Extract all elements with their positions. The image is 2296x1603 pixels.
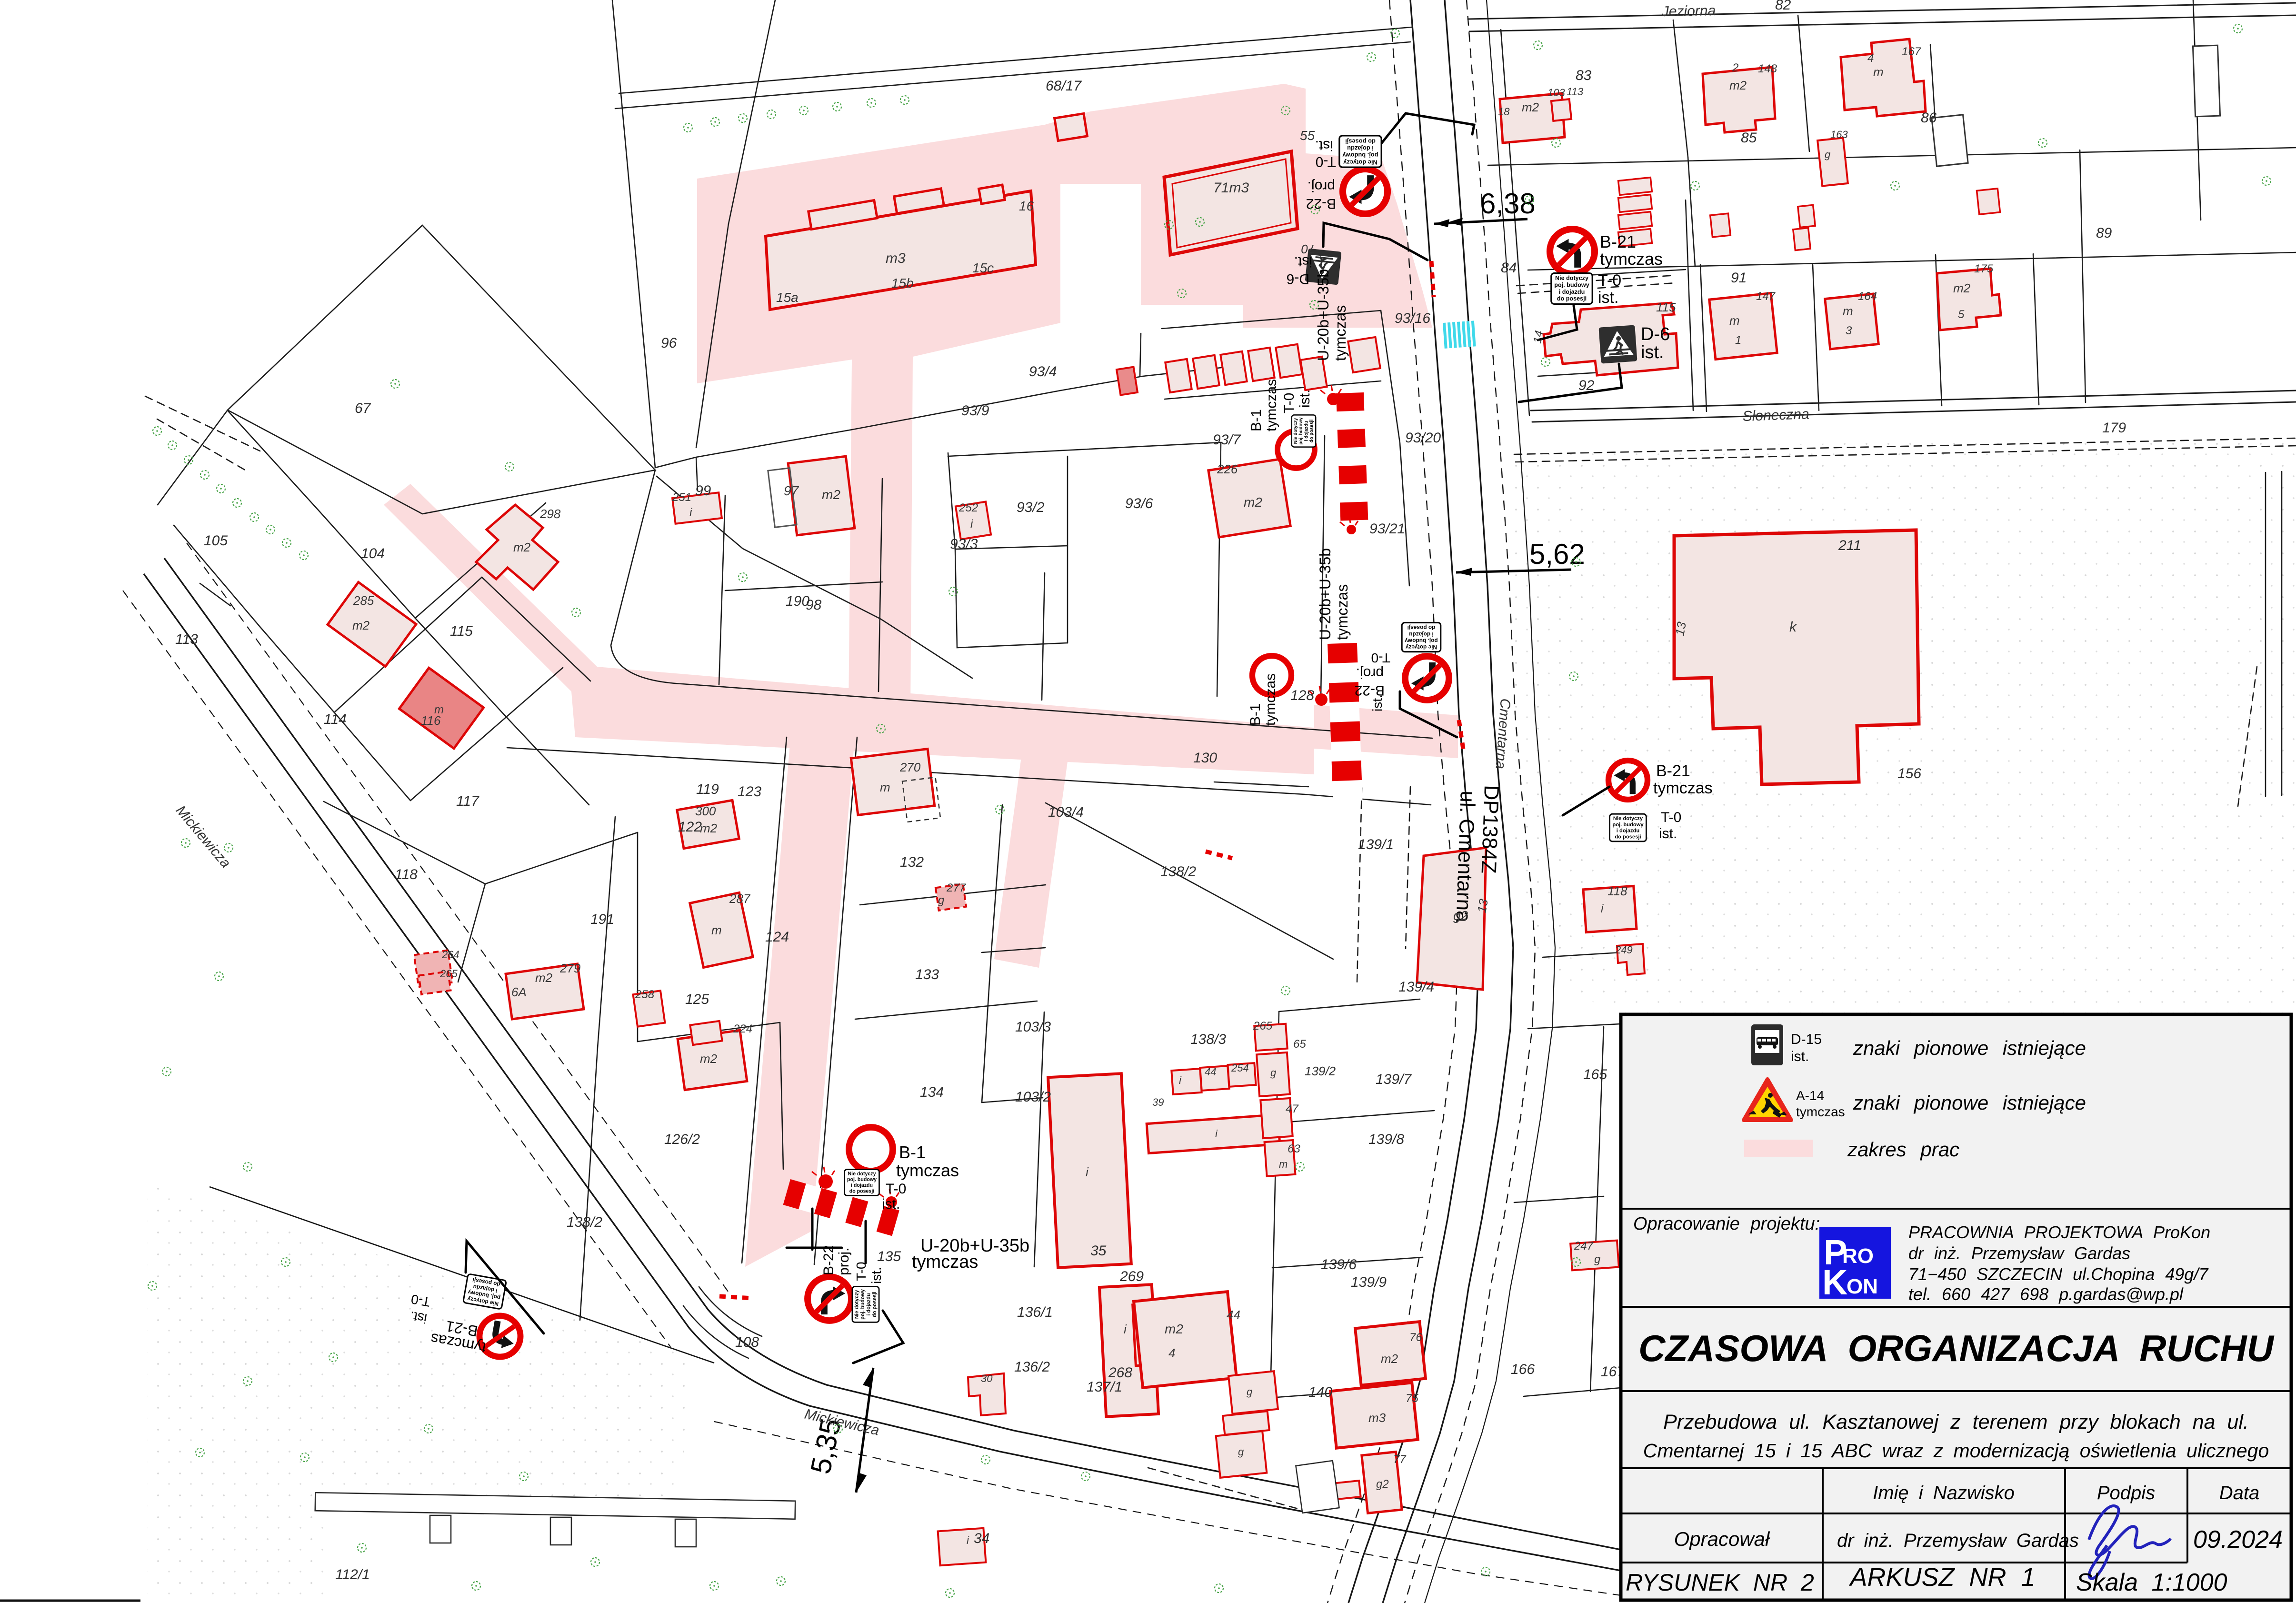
svg-text:tymczas: tymczas: [1332, 305, 1349, 361]
svg-text:tymczas: tymczas: [1264, 379, 1279, 431]
svg-text:138/3: 138/3: [1190, 1032, 1226, 1047]
svg-text:dr inż. Przemysław Gardas: dr inż. Przemysław Gardas: [1837, 1530, 2079, 1551]
svg-text:B-1: B-1: [1248, 703, 1263, 726]
svg-text:279: 279: [559, 961, 580, 975]
svg-text:34: 34: [974, 1531, 989, 1546]
svg-text:249: 249: [1615, 944, 1633, 956]
svg-text:265: 265: [439, 968, 458, 980]
svg-text:m3: m3: [886, 250, 906, 266]
svg-text:258: 258: [635, 988, 655, 1001]
svg-text:277: 277: [946, 882, 967, 894]
svg-text:268: 268: [1108, 1365, 1132, 1381]
svg-text:98: 98: [806, 597, 822, 613]
svg-text:82: 82: [1775, 0, 1791, 13]
svg-text:254: 254: [1231, 1062, 1249, 1074]
svg-text:tymczas: tymczas: [912, 1252, 978, 1272]
svg-text:71−450 SZCZECIN ul.Chopina 49g: 71−450 SZCZECIN ul.Chopina 49g/7: [1908, 1264, 2209, 1284]
svg-text:123: 123: [738, 784, 761, 800]
svg-text:93/3: 93/3: [950, 536, 978, 552]
svg-text:T-0: T-0: [1281, 393, 1297, 413]
svg-text:113: 113: [1567, 86, 1584, 98]
svg-text:97: 97: [784, 483, 799, 498]
svg-text:65: 65: [1293, 1038, 1306, 1051]
svg-text:B-21: B-21: [1600, 232, 1636, 251]
svg-text:proj.: proj.: [836, 1248, 852, 1275]
svg-text:3: 3: [1846, 324, 1852, 337]
svg-text:i: i: [970, 518, 973, 531]
svg-text:93/6: 93/6: [1125, 496, 1153, 511]
svg-text:137/1: 137/1: [1087, 1379, 1122, 1395]
svg-text:93/4: 93/4: [1029, 364, 1057, 380]
svg-text:5: 5: [1958, 308, 1965, 321]
svg-text:86: 86: [1921, 110, 1937, 126]
svg-text:CZASOWA ORGANIZACJA RUCHU: CZASOWA ORGANIZACJA RUCHU: [1638, 1327, 2275, 1369]
svg-text:108: 108: [735, 1334, 759, 1350]
svg-text:85: 85: [1741, 130, 1757, 146]
svg-text:18: 18: [1498, 106, 1510, 118]
svg-text:ist.: ist.: [409, 1309, 428, 1326]
svg-text:6,38: 6,38: [1480, 188, 1536, 220]
svg-text:119: 119: [696, 781, 719, 797]
svg-text:tel. 660 427 698 p.gardas@wp: tel. 660 427 698 p.gardas@wp.pl: [1908, 1284, 2184, 1304]
svg-text:T-0: T-0: [1316, 154, 1336, 170]
svg-text:77: 77: [1393, 1453, 1407, 1466]
svg-text:84: 84: [1501, 260, 1517, 276]
svg-text:103/2: 103/2: [1015, 1089, 1051, 1105]
svg-text:D-15: D-15: [1791, 1032, 1822, 1047]
svg-text:117: 117: [456, 793, 479, 809]
svg-text:252: 252: [958, 501, 978, 514]
svg-text:128: 128: [1290, 688, 1314, 703]
svg-text:m2: m2: [1522, 100, 1539, 114]
svg-text:zakres prac: zakres prac: [1847, 1138, 1959, 1161]
svg-text:104: 104: [361, 546, 385, 561]
svg-text:B-1: B-1: [1248, 409, 1264, 431]
svg-text:75: 75: [1406, 1392, 1418, 1405]
svg-text:i: i: [1601, 902, 1604, 915]
svg-text:138/2: 138/2: [567, 1214, 602, 1230]
svg-text:g: g: [938, 894, 945, 907]
svg-text:m: m: [434, 703, 444, 716]
svg-text:30: 30: [981, 1373, 993, 1384]
svg-text:15c: 15c: [972, 260, 994, 275]
svg-text:138/2: 138/2: [1160, 864, 1196, 880]
svg-text:m3: m3: [1368, 1411, 1386, 1425]
svg-text:T-0: T-0: [1661, 810, 1681, 825]
svg-text:T-0: T-0: [886, 1181, 906, 1197]
svg-text:g: g: [1247, 1386, 1253, 1398]
svg-text:15b: 15b: [891, 276, 914, 291]
svg-text:5,62: 5,62: [1529, 538, 1585, 570]
svg-text:ist.: ist.: [1370, 694, 1385, 711]
svg-text:92: 92: [1578, 378, 1595, 393]
svg-text:m2: m2: [513, 540, 531, 554]
svg-text:proj.: proj.: [1356, 665, 1384, 681]
svg-text:tymczas: tymczas: [1600, 249, 1663, 269]
svg-text:39: 39: [1152, 1096, 1164, 1108]
svg-text:m2: m2: [352, 618, 370, 632]
svg-text:139/9: 139/9: [1351, 1274, 1387, 1290]
svg-text:g2: g2: [1453, 908, 1468, 923]
svg-text:tymczas: tymczas: [1263, 673, 1278, 726]
svg-text:Jeziorna: Jeziorna: [1661, 3, 1716, 20]
svg-text:ist.: ist.: [882, 1196, 900, 1212]
svg-text:140: 140: [1308, 1384, 1332, 1400]
svg-text:91: 91: [1731, 270, 1747, 286]
svg-text:115: 115: [1656, 300, 1676, 314]
svg-text:148: 148: [1758, 62, 1777, 75]
svg-text:dr inż. Przemysław Gardas: dr inż. Przemysław Gardas: [1908, 1243, 2130, 1263]
svg-text:96: 96: [661, 335, 677, 351]
svg-text:tymczas: tymczas: [1796, 1104, 1845, 1119]
svg-text:191: 191: [590, 912, 614, 927]
svg-text:135: 135: [877, 1249, 901, 1264]
svg-text:71m3: 71m3: [1213, 180, 1249, 196]
svg-text:118: 118: [1607, 884, 1627, 898]
svg-text:Cmentarnej 15 i 15 ABC wraz z: Cmentarnej 15 i 15 ABC wraz z modernizac…: [1643, 1440, 2269, 1462]
svg-text:139/2: 139/2: [1305, 1064, 1336, 1078]
svg-text:163: 163: [1830, 129, 1848, 140]
svg-text:298: 298: [539, 507, 561, 521]
svg-text:T-0: T-0: [1598, 271, 1621, 290]
svg-text:m: m: [1279, 1158, 1288, 1170]
svg-text:165: 165: [1583, 1067, 1607, 1082]
svg-text:Skala 1:1000: Skala 1:1000: [2076, 1569, 2227, 1596]
svg-text:m: m: [1843, 304, 1853, 318]
svg-text:139/6: 139/6: [1321, 1257, 1357, 1272]
svg-text:1: 1: [1735, 334, 1741, 347]
svg-text:93/7: 93/7: [1213, 432, 1241, 448]
svg-text:m2: m2: [822, 487, 840, 502]
svg-text:122: 122: [678, 819, 702, 835]
svg-text:ul. Cmentarna: ul. Cmentarna: [1451, 791, 1479, 923]
svg-text:ARKUSZ NR 1: ARKUSZ NR 1: [1848, 1563, 2035, 1592]
svg-text:RYSUNEK NR 2: RYSUNEK NR 2: [1626, 1569, 1814, 1596]
svg-text:Słoneczna: Słoneczna: [1742, 406, 1809, 424]
svg-text:132: 132: [900, 854, 924, 870]
svg-text:i: i: [689, 506, 692, 519]
svg-text:6A: 6A: [511, 985, 527, 999]
svg-text:89: 89: [2096, 225, 2112, 241]
svg-text:16: 16: [1019, 199, 1034, 213]
svg-text:K: K: [1822, 1262, 1847, 1302]
svg-text:226: 226: [1217, 462, 1238, 476]
svg-text:tymczas: tymczas: [1653, 779, 1713, 797]
svg-text:269: 269: [1119, 1269, 1144, 1284]
svg-text:4: 4: [1867, 52, 1874, 65]
svg-text:g2: g2: [1376, 1478, 1389, 1491]
svg-text:znaki pionowe istniejące: znaki pionowe istniejące: [1853, 1092, 2086, 1114]
svg-text:103/4: 103/4: [1048, 804, 1084, 820]
svg-text:2: 2: [1732, 61, 1738, 74]
svg-text:93/20: 93/20: [1405, 430, 1441, 446]
svg-text:47: 47: [1286, 1102, 1299, 1115]
svg-text:m2: m2: [535, 971, 553, 985]
svg-text:m: m: [880, 780, 890, 794]
svg-text:93/9: 93/9: [961, 403, 989, 419]
svg-text:ist.: ist.: [1791, 1049, 1809, 1064]
svg-text:m2: m2: [1381, 1352, 1398, 1366]
svg-text:93/21: 93/21: [1369, 521, 1405, 537]
svg-text:175: 175: [1974, 262, 1994, 275]
svg-text:U-20b+U-35b: U-20b+U-35b: [1315, 269, 1332, 361]
svg-text:270: 270: [899, 760, 921, 774]
svg-text:ist.: ist.: [1659, 826, 1677, 842]
svg-text:Przebudowa ul. Kasztanowej z t: Przebudowa ul. Kasztanowej z terenem prz…: [1663, 1411, 2249, 1433]
svg-text:265: 265: [1253, 1020, 1273, 1032]
svg-text:139/7: 139/7: [1376, 1072, 1412, 1087]
svg-text:247: 247: [1574, 1240, 1594, 1252]
svg-text:136/1: 136/1: [1017, 1304, 1053, 1320]
svg-text:znaki pionowe istniejące: znaki pionowe istniejące: [1853, 1037, 2086, 1059]
svg-text:m2: m2: [1244, 495, 1262, 510]
svg-text:139/4: 139/4: [1398, 979, 1434, 995]
svg-text:134: 134: [920, 1084, 944, 1100]
svg-text:m2: m2: [1953, 281, 1971, 295]
svg-text:D-6: D-6: [1641, 324, 1670, 344]
svg-text:83: 83: [1576, 68, 1592, 83]
svg-text:Data: Data: [2219, 1483, 2260, 1503]
svg-text:115: 115: [450, 623, 473, 639]
svg-text:g: g: [1238, 1446, 1244, 1458]
svg-text:m2: m2: [700, 821, 718, 835]
svg-text:44: 44: [1205, 1066, 1216, 1078]
svg-text:PRACOWNIA PROJEKTOWA ProKon: PRACOWNIA PROJEKTOWA ProKon: [1908, 1222, 2210, 1242]
svg-text:63: 63: [1288, 1142, 1300, 1155]
svg-text:136/2: 136/2: [1014, 1359, 1050, 1375]
svg-text:224: 224: [733, 1022, 752, 1035]
svg-text:ON: ON: [1847, 1275, 1878, 1298]
svg-text:g: g: [1270, 1067, 1277, 1079]
svg-text:93/2: 93/2: [1017, 500, 1045, 515]
svg-text:70: 70: [1301, 242, 1315, 256]
svg-text:124: 124: [765, 929, 789, 945]
svg-text:139/8: 139/8: [1368, 1132, 1404, 1147]
svg-text:76: 76: [1409, 1331, 1422, 1344]
svg-text:Opracowanie projektu:: Opracowanie projektu:: [1633, 1214, 1820, 1234]
svg-text:T-0: T-0: [854, 1262, 868, 1281]
svg-text:m2: m2: [700, 1052, 718, 1066]
svg-text:285: 285: [353, 593, 374, 608]
svg-text:13: 13: [1672, 621, 1689, 637]
svg-text:Podpis: Podpis: [2097, 1483, 2155, 1503]
svg-text:211: 211: [1838, 538, 1861, 553]
svg-text:T-0: T-0: [1371, 651, 1390, 665]
svg-text:103/3: 103/3: [1015, 1019, 1051, 1035]
svg-text:U-20b+U-35b: U-20b+U-35b: [1317, 548, 1334, 640]
svg-text:179: 179: [2102, 420, 2126, 436]
svg-text:ist.: ist.: [1297, 390, 1313, 408]
svg-text:13: 13: [1474, 898, 1491, 914]
svg-text:139/1: 139/1: [1358, 837, 1394, 852]
svg-text:118: 118: [395, 867, 418, 882]
svg-text:300: 300: [695, 804, 716, 818]
svg-text:4: 4: [1168, 1346, 1175, 1360]
svg-text:ist.: ist.: [869, 1267, 884, 1284]
svg-text:15a: 15a: [776, 290, 799, 305]
svg-text:B-21: B-21: [1656, 762, 1690, 780]
svg-text:105: 105: [204, 533, 228, 549]
svg-text:B-1: B-1: [899, 1142, 926, 1162]
svg-text:287: 287: [729, 892, 751, 906]
svg-text:m: m: [1729, 313, 1740, 328]
svg-text:m2: m2: [1729, 78, 1747, 92]
svg-text:125: 125: [685, 992, 709, 1007]
svg-text:166: 166: [1511, 1362, 1535, 1377]
svg-text:ist.: ist.: [1641, 342, 1664, 362]
svg-text:g: g: [1825, 149, 1831, 160]
svg-text:m: m: [1873, 65, 1884, 79]
svg-text:tymczas: tymczas: [896, 1161, 959, 1180]
svg-text:67: 67: [355, 401, 371, 416]
svg-text:D-6: D-6: [1287, 271, 1309, 287]
svg-text:167: 167: [1902, 45, 1922, 58]
svg-text:130: 130: [1193, 750, 1217, 766]
svg-text:133: 133: [915, 967, 939, 982]
svg-text:Opracował: Opracował: [1674, 1528, 1770, 1550]
svg-text:68/17: 68/17: [1046, 78, 1082, 94]
svg-text:103: 103: [1547, 87, 1565, 99]
svg-text:g: g: [1594, 1253, 1601, 1266]
svg-text:93/16: 93/16: [1395, 311, 1430, 326]
svg-text:55: 55: [1300, 128, 1315, 143]
svg-text:09.2024: 09.2024: [2193, 1526, 2283, 1553]
svg-text:126/2: 126/2: [664, 1132, 700, 1147]
svg-text:112/1: 112/1: [335, 1567, 370, 1583]
svg-text:264: 264: [441, 949, 459, 961]
svg-text:B-22: B-22: [821, 1245, 837, 1275]
svg-text:44: 44: [1227, 1308, 1240, 1322]
svg-text:DP1384Z: DP1384Z: [1477, 785, 1503, 874]
svg-text:tymczas: tymczas: [1334, 584, 1351, 640]
svg-text:251: 251: [672, 491, 691, 504]
svg-text:164: 164: [1858, 290, 1877, 303]
svg-text:ist.: ist.: [1598, 289, 1618, 307]
svg-text:35: 35: [1090, 1243, 1107, 1259]
svg-text:114: 114: [324, 711, 347, 727]
svg-text:m: m: [711, 923, 722, 937]
svg-text:113: 113: [175, 631, 198, 647]
svg-text:99: 99: [695, 483, 711, 499]
svg-text:m2: m2: [1165, 1322, 1183, 1336]
svg-text:ist.: ist.: [1315, 138, 1333, 153]
svg-text:147: 147: [1756, 290, 1776, 303]
svg-text:156: 156: [1897, 766, 1921, 781]
svg-text:A-14: A-14: [1796, 1088, 1824, 1103]
svg-text:proj.: proj.: [1308, 179, 1335, 194]
svg-text:k: k: [1789, 619, 1797, 635]
svg-text:14: 14: [1531, 330, 1546, 344]
svg-text:Imię i Nazwisko: Imię i Nazwisko: [1873, 1483, 2015, 1503]
